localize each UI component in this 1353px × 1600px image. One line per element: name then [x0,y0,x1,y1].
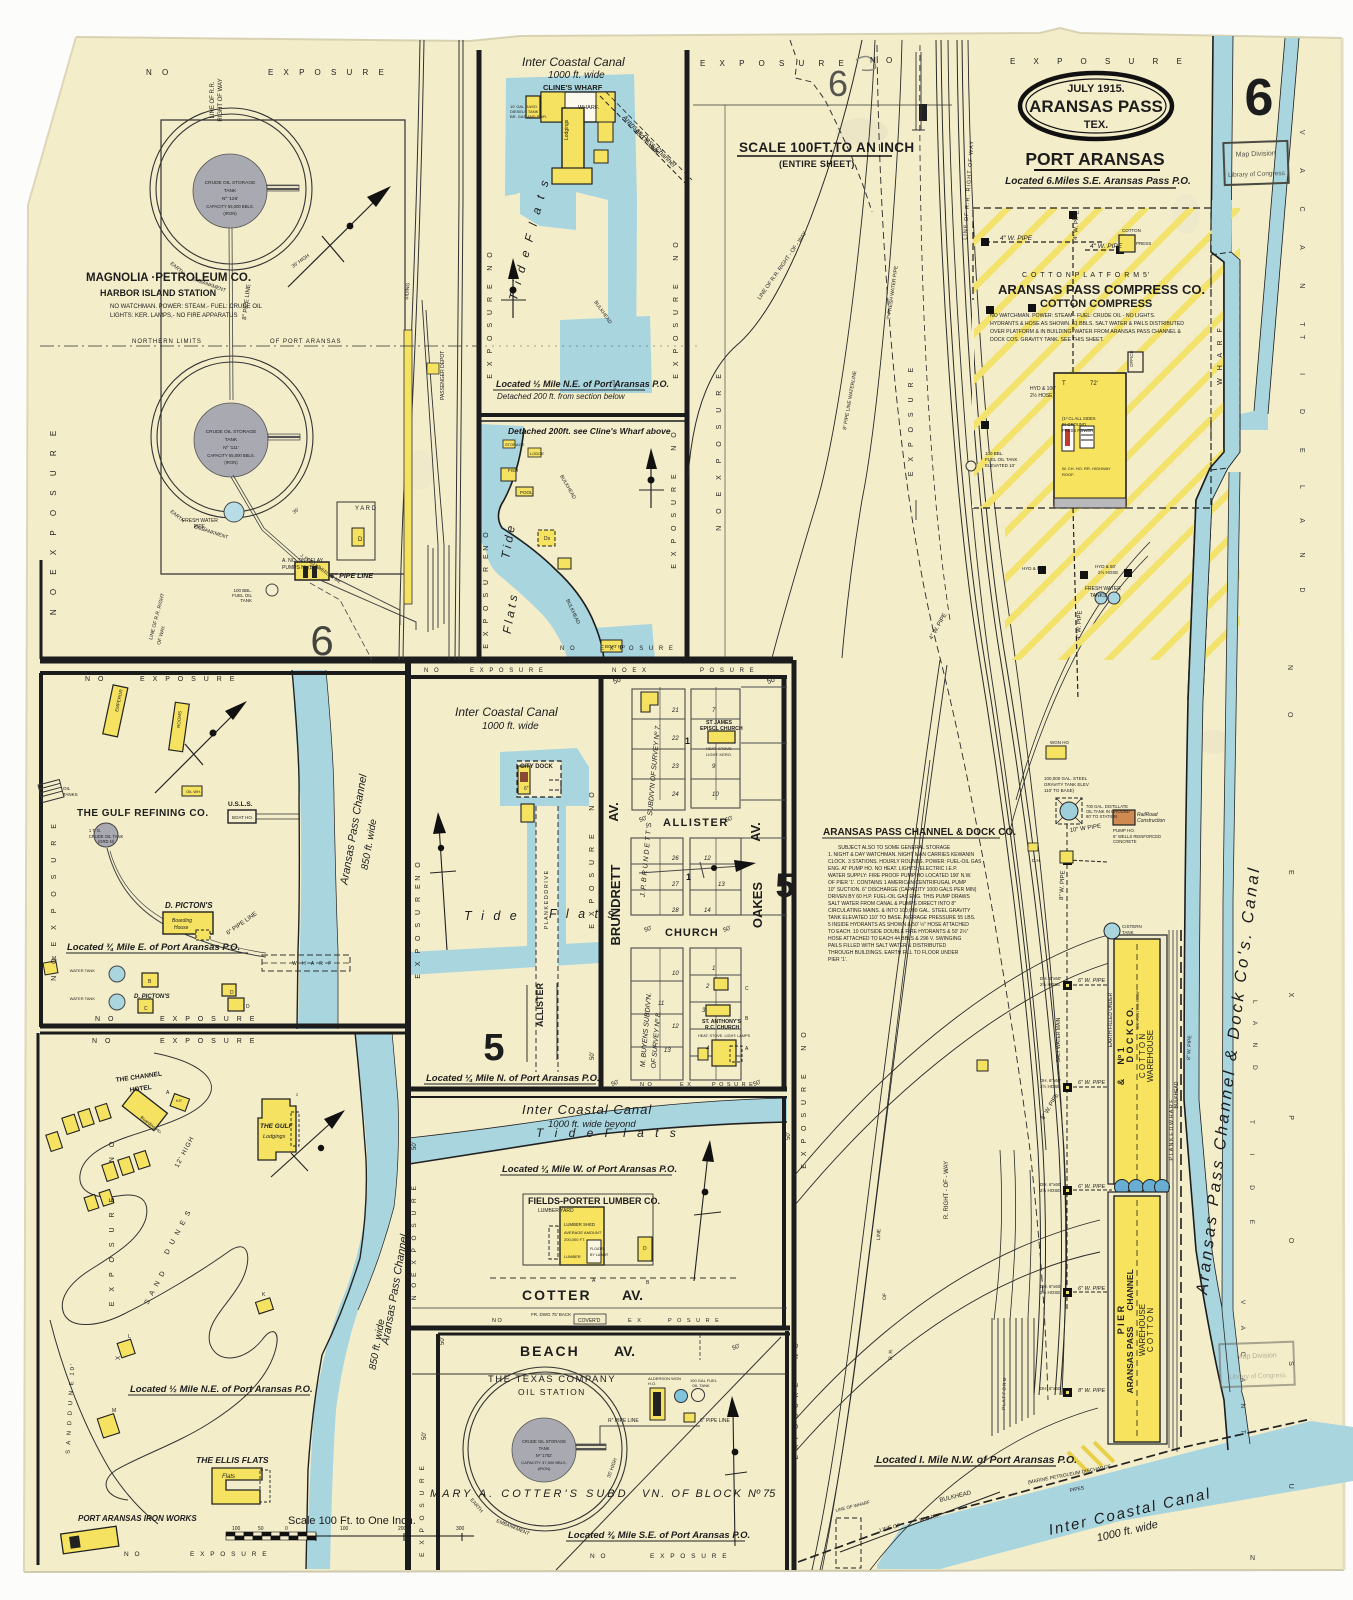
svg-text:CRUDE OIL STORAGE: CRUDE OIL STORAGE [522,1439,566,1444]
svg-text:Y A R D: Y A R D [355,506,377,512]
svg-text:STORAGE: STORAGE [505,442,525,447]
svg-text:Inter Coastal Canal: Inter Coastal Canal [455,705,558,719]
svg-text:KIT: KIT [176,1098,183,1103]
svg-text:E X P O S U R E: E X P O S U R E [415,881,422,978]
svg-text:N O: N O [92,1038,113,1045]
svg-text:E X: E X [628,1318,643,1324]
svg-text:OIL TANK: OIL TANK [692,1383,710,1388]
svg-text:Lodgings: Lodgings [263,1134,286,1140]
svg-text:1: 1 [685,736,690,746]
svg-text:COTTON: COTTON [1122,228,1141,233]
svg-text:H.O.: H.O. [648,1381,656,1386]
svg-text:PORT ARANSAS: PORT ARANSAS [1025,149,1164,169]
svg-text:N O: N O [95,1016,116,1023]
svg-text:FRESH WATER: FRESH WATER [1085,586,1121,592]
svg-text:6″ W. PIPE: 6″ W. PIPE [1078,1286,1105,1292]
svg-text:2½ HOSE: 2½ HOSE [1098,569,1118,575]
svg-text:6″ PIPE LINE: 6″ PIPE LINE [700,1418,731,1424]
svg-text:N O E X: N O E X [612,668,648,674]
svg-text:6″ W. PIPE: 6″ W. PIPE [1078,1080,1105,1086]
svg-text:Construction: Construction [1137,818,1165,824]
svg-text:V A C A N T: V A C A N T [1239,1300,1246,1444]
svg-text:Flats: Flats [222,1474,235,1480]
svg-text:N O: N O [146,68,172,77]
svg-text:COTTER: COTTER [522,1287,592,1303]
svg-text:Lodgings: Lodgings [564,119,570,140]
svg-text:2½ HOSE: 2½ HOSE [1030,392,1053,399]
svg-text:LINE: LINE [876,1228,882,1240]
svg-text:Located I. Mile N.W. of Port A: Located I. Mile N.W. of Port Aransas P.O… [876,1454,1077,1466]
svg-text:FUEL OIL TANK: FUEL OIL TANK [985,457,1018,462]
svg-text:6″ W. PIPE: 6″ W. PIPE [1078,978,1105,984]
svg-text:L: L [128,1334,131,1340]
svg-text:E X P O S U R E: E X P O S U R E [793,1381,800,1460]
svg-text:80' TO STATION: 80' TO STATION [1086,814,1117,819]
svg-text:N O: N O [801,1029,808,1050]
svg-text:COVER'D: COVER'D [578,1318,601,1324]
svg-text:E X P O S U R E: E X P O S U R E [1287,870,1294,1600]
svg-text:Located ¼ Mile N. of Port Aran: Located ¼ Mile N. of Port Aransas P.O. [426,1073,600,1084]
svg-text:N O: N O [1286,665,1293,737]
svg-text:T I D E: T I D E [1298,335,1305,469]
svg-text:EPISCL CHURCH: EPISCL CHURCH [700,726,743,732]
svg-text:PUMP HO.: PUMP HO. [1113,828,1135,833]
svg-text:DH. 6″x60': DH. 6″x60' [1040,1078,1061,1083]
svg-text:12: 12 [672,1024,679,1030]
svg-text:LIGHT: KERO.: LIGHT: KERO. [706,752,732,757]
svg-text:OF PIER '1'. CONTAINS 1 AMERI: OF PIER '1'. CONTAINS 1 AMERICAN CENTRIF… [828,880,967,886]
svg-text:2½ HOSE: 2½ HOSE [1040,981,1060,987]
svg-text:N O: N O [424,668,441,674]
svg-text:OF: OF [882,1293,888,1300]
svg-text:MAGNOLIA ·PETROLEUM CO.: MAGNOLIA ·PETROLEUM CO. [86,272,251,284]
svg-text:BY LABOR: BY LABOR [590,1253,608,1257]
svg-text:DH. 6″x60': DH. 6″x60' [1040,1182,1061,1187]
svg-text:(1º CL ALL SIDES: (1º CL ALL SIDES [1062,416,1096,421]
svg-text:D: D [230,990,234,996]
svg-text:RIGHT OF WAY: RIGHT OF WAY [218,78,224,121]
svg-text:N O: N O [560,646,577,652]
svg-text:ARANSAS PASS: ARANSAS PASS [1029,97,1163,116]
svg-text:Scale 100 Ft. to One Inch.: Scale 100 Ft. to One Inch. [288,1515,416,1527]
svg-text:N O: N O [483,529,490,550]
svg-text:WHARF.: WHARF. [578,105,600,111]
svg-text:FR. DWG 75' BACK: FR. DWG 75' BACK [531,1312,571,1317]
svg-text:D. PICTON'S: D. PICTON'S [134,994,170,1000]
svg-text:AV.: AV. [748,822,763,842]
svg-text:(IRON): (IRON) [224,460,238,465]
svg-text:W H A R F: W H A R F [292,961,333,967]
svg-text:N O: N O [590,1553,608,1560]
svg-text:MARY A. COTTER'S SUBD: MARY A. COTTER'S SUBD [430,1488,629,1500]
svg-text:Located ⅜ Mile S.E. of Port Ar: Located ⅜ Mile S.E. of Port Aransas P.O. [568,1530,750,1541]
svg-text:AVERAGE AMOUNT: AVERAGE AMOUNT [564,1230,602,1235]
svg-text:T I D E: T I D E [1248,1120,1255,1238]
svg-text:10: 10 [672,971,679,977]
svg-text:Located ¾ Mile E. of Port Aran: Located ¾ Mile E. of Port Aransas P.O. [67,942,240,953]
svg-text:13: 13 [718,882,725,888]
svg-text:CHANNEL: CHANNEL [1125,1269,1135,1311]
svg-text:LUMBER SHED: LUMBER SHED [564,1222,595,1227]
svg-text:LUMBER YARD: LUMBER YARD [538,1208,574,1214]
svg-text:L A N D: L A N D [1298,485,1305,606]
svg-text:ELEVATED 10': ELEVATED 10' [985,463,1015,468]
svg-text:CHURCH: CHURCH [665,927,719,939]
svg-text:(ENTIRE SHEET): (ENTIRE SHEET) [779,159,855,169]
svg-text:Nº '111': Nº '111' [223,445,239,451]
svg-text:E X P O S U R E: E X P O S U R E [140,676,237,683]
svg-text:HYD & 100': HYD & 100' [1030,386,1056,392]
svg-text:CLINE'S WHARF: CLINE'S WHARF [543,83,603,92]
svg-text:ARANSAS PASS: ARANSAS PASS [1125,1326,1135,1393]
svg-text:SALT WATER MAIN: SALT WATER MAIN [1056,1017,1062,1062]
svg-text:ALLISTER: ALLISTER [535,983,545,1027]
svg-text:100 BBL.: 100 BBL. [985,451,1004,456]
svg-text:OIL STATION: OIL STATION [518,1387,586,1397]
svg-text:JULY 1915.: JULY 1915. [1067,83,1125,95]
svg-text:Inter Coastal Canal: Inter Coastal Canal [522,1102,652,1117]
svg-text:T i d e F l a t s: T i d e F l a t s [536,1126,680,1140]
svg-text:E X P O S U R E: E X P O S U R E [109,1194,116,1306]
svg-text:50: 50 [258,1526,264,1532]
svg-text:5 INSIDE HYDRANTS AS SHOWN & 5: 5 INSIDE HYDRANTS AS SHOWN & 50' ½″ HOSE… [828,921,969,928]
svg-text:E X P O S U R E: E X P O S U R E [589,831,596,928]
svg-text:11: 11 [658,1001,664,1007]
svg-text:1. NIGHT & DAY WATCHMAN. NIGHT: 1. NIGHT & DAY WATCHMAN. NIGHT MAN CARRI… [828,852,975,858]
svg-text:DH. 6″x60': DH. 6″x60' [1040,976,1061,981]
svg-text:CAPACITY 37,500 BBLS.: CAPACITY 37,500 BBLS. [521,1460,566,1465]
svg-text:10″ SUCTION. 6″ DISCHARGE (CAP: 10″ SUCTION. 6″ DISCHARGE (CAPACITY 1000… [828,887,977,893]
svg-text:D: D [358,537,363,543]
svg-text:1000 ft. wide: 1000 ft. wide [482,721,539,732]
svg-text:E X P O S U R E: E X P O S U R E [487,281,494,378]
svg-text:28: 28 [671,908,679,914]
svg-text:GRAVITY TANK ELEV: GRAVITY TANK ELEV [1044,782,1089,787]
svg-text:N: N [1250,1555,1255,1562]
svg-text:N O: N O [673,239,680,260]
svg-text:THE TEXAS COMPANY: THE TEXAS COMPANY [488,1374,616,1385]
svg-text:D: D [246,1004,250,1010]
svg-text:OFFICE: OFFICE [1129,351,1134,368]
svg-text:5: 5 [483,1027,504,1069]
svg-text:BULKHEAD: BULKHEAD [1174,1081,1180,1108]
svg-text:FLOATS: FLOATS [590,1247,604,1251]
svg-text:8″ W. PIPE: 8″ W. PIPE [1078,1388,1105,1394]
svg-text:100,000 GAL. STEEL: 100,000 GAL. STEEL [1044,776,1088,781]
svg-text:1: 1 [712,966,715,972]
svg-text:N O: N O [124,1551,142,1558]
svg-text:SUBJECT ALSO TO SOME GENERAL S: SUBJECT ALSO TO SOME GENERAL STORAGE [838,845,951,851]
svg-text:VN. OF BLOCK: VN. OF BLOCK [642,1488,743,1500]
svg-text:PIER '1'.: PIER '1'. [828,957,847,963]
svg-text:NORTHERN LIMITS: NORTHERN LIMITS [132,339,202,345]
svg-text:OIL: OIL [63,786,71,791]
svg-text:C O T T O N P L A T F O R: C O T T O N P L A T F O R M 5' [1022,272,1150,279]
svg-text:E X P O S U R E: E X P O S U R E [908,364,915,476]
svg-text:50': 50' [590,1052,596,1060]
svg-text:R. R.: R. R. [888,1348,894,1360]
svg-text:IN GROUND: IN GROUND [1062,422,1086,427]
svg-text:V A C A N T: V A C A N T [1298,130,1305,342]
svg-text:12: 12 [704,856,711,862]
svg-text:CISTERN: CISTERN [1122,924,1142,929]
svg-text:300: 300 [456,1526,465,1532]
svg-text:P O S U R E: P O S U R E [668,1318,721,1324]
svg-text:D. PICTON'S: D. PICTON'S [165,901,213,910]
svg-text:CONCRETE: CONCRETE [1113,839,1137,844]
svg-text:PRESS POWER.: PRESS POWER. [1062,428,1094,433]
svg-text:NO WATCHMAN. POWER: STEAM - FU: NO WATCHMAN. POWER: STEAM - FUEL: CRUDE … [990,313,1155,319]
svg-text:C: C [745,986,749,992]
svg-text:U.S.L.S.: U.S.L.S. [228,801,253,808]
svg-text:WATER TANK: WATER TANK [70,968,96,973]
svg-text:W. CH. HO. RR. HIGHWAY: W. CH. HO. RR. HIGHWAY [1062,466,1111,471]
svg-text:1 T. G.: 1 T. G. [89,828,101,833]
svg-text:2½ HOSE: 2½ HOSE [1040,1289,1060,1295]
svg-text:LODGE: LODGE [530,451,544,456]
svg-text:E X P O S U R E: E X P O S U R E [160,1038,257,1045]
svg-text:Ds: Ds [544,536,551,542]
svg-text:E X P O S U R E: E X P O S U R E [801,1071,808,1168]
svg-text:WGN HO: WGN HO [1050,740,1069,745]
svg-text:E X P O S U R E: E X P O S U R E [600,646,675,652]
svg-text:24: 24 [671,792,679,798]
svg-text:PORT ARANSAS IRON WORKS: PORT ARANSAS IRON WORKS [78,1514,197,1523]
svg-text:CAPACITY 55,000 BBLS.: CAPACITY 55,000 BBLS. [207,453,255,458]
svg-text:E X P O S U R E: E X P O S U R E [160,1016,257,1023]
svg-text:E X P O S U R E: E X P O S U R E [650,1553,729,1560]
svg-text:E X P O S U R E: E X P O S U R E [470,668,545,674]
svg-text:BOAT HO.: BOAT HO. [232,815,253,820]
svg-text:1000 ft. wide: 1000 ft. wide [548,70,605,81]
svg-text:TEX.: TEX. [1084,119,1108,131]
svg-text:23: 23 [671,764,679,770]
svg-text:E X P O S U R E: E X P O S U R E [1010,57,1190,66]
svg-text:0: 0 [285,1526,288,1532]
svg-text:6: 6 [828,63,848,104]
svg-text:10: 10 [712,792,719,798]
svg-text:AV.: AV. [614,1343,635,1359]
svg-text:CRUDE OIL STORAGE: CRUDE OIL STORAGE [206,429,257,435]
svg-text:Detached 200 ft. from section: Detached 200 ft. from section below [497,392,626,401]
svg-text:OAKES: OAKES [750,882,765,929]
svg-text:WAREHOUSE: WAREHOUSE [1146,1030,1155,1082]
svg-text:N O: N O [671,429,678,450]
svg-text:N O: N O [793,1341,800,1359]
svg-text:N O: N O [85,676,106,683]
svg-text:110' TO BASE): 110' TO BASE) [1044,788,1075,793]
svg-text:100: 100 [340,1526,349,1532]
svg-text:HARBOR ISLAND STATION: HARBOR ISLAND STATION [100,288,216,298]
svg-text:CLOCK. 3 STATIONS. HOURLY ROUN: CLOCK. 3 STATIONS. HOURLY ROUNDS. POWER:… [828,859,982,865]
svg-text:22: 22 [671,736,679,742]
svg-text:&: & [1116,1078,1126,1085]
svg-text:FISH: FISH [508,468,518,473]
svg-text:DOCK COS. GRAVITY TANK. SEE TH: DOCK COS. GRAVITY TANK. SEE THIS SHEET. [990,337,1104,343]
svg-text:ARANSAS PASS CHANNEL & DOCK CO: ARANSAS PASS CHANNEL & DOCK CO. [823,827,1016,838]
svg-text:DH. 6″x60': DH. 6″x60' [1040,1386,1061,1391]
svg-text:72': 72' [1090,381,1098,387]
svg-text:P L A N K E D D R I V E: P L A N K E D D R I V E [544,870,550,929]
svg-text:EARTH FILLED UNDER: EARTH FILLED UNDER [1108,992,1114,1047]
svg-text:TANK: TANK [1122,930,1134,935]
svg-text:E X P O S U R E: E X P O S U R E [671,471,678,568]
svg-text:E X P O S U R E: E X P O S U R E [419,1463,426,1557]
svg-text:SUPPORTING ROOF: SUPPORTING ROOF [1135,990,1140,1030]
svg-text:TANK: TANK [224,188,237,194]
svg-text:PIPE.: PIPE. [194,524,207,530]
svg-text:N O: N O [415,859,422,880]
svg-text:21: 21 [671,708,679,714]
svg-text:Located ½ Mile N.E. of Port Ar: Located ½ Mile N.E. of Port Aransas P.O. [496,379,669,389]
svg-text:LUMBER: LUMBER [564,1254,581,1259]
svg-text:LIGHTS: KER. LAMPS,- NO FIRE A: LIGHTS: KER. LAMPS,- NO FIRE APPARATUS [110,313,237,319]
svg-text:R. RIGHT - OF - WAY: R. RIGHT - OF - WAY [944,1161,950,1219]
svg-text:F l a t s: F l a t s [549,907,617,921]
svg-text:6: 6 [1245,69,1274,127]
svg-text:NO WATCHMAN. POWER: STEAM.- FU: NO WATCHMAN. POWER: STEAM.- FUEL: CRUDE … [110,304,263,310]
svg-text:N O E X P O S U R E: N O E X P O S U R E [716,369,723,531]
svg-text:2½ HOSE: 2½ HOSE [1040,1187,1060,1193]
svg-text:E X P O S U R E: E X P O S U R E [673,281,680,378]
svg-text:ROOF.: ROOF. [1062,472,1074,477]
svg-text:N O: N O [870,56,896,65]
svg-text:LINE OF R.R.: LINE OF R.R. [210,81,216,118]
svg-text:(IRON): (IRON) [223,211,237,216]
svg-text:E X P O S U R E: E X P O S U R E [190,1551,269,1558]
svg-text:BR. GAS AND PWR.: BR. GAS AND PWR. [510,114,547,119]
svg-text:X: X [116,1356,122,1360]
svg-text:HEAT: STOVE. LIGHT: LAMPS: HEAT: STOVE. LIGHT: LAMPS [698,1034,751,1038]
svg-text:TANKS: TANKS [63,792,78,797]
svg-text:OVER PLATFORM & IN BUILDING. W: OVER PLATFORM & IN BUILDING. WATER FROM … [990,329,1182,335]
svg-text:TANK ELEVATED 110' TO BASE. AV: TANK ELEVATED 110' TO BASE. AVERAGE PRES… [828,915,975,921]
svg-text:2: 2 [705,984,710,990]
svg-text:HYDRANTS & HOSE AS SHOWN. 61: HYDRANTS & HOSE AS SHOWN. 61 BBLS. SALT … [990,321,1184,327]
svg-text:HOSE ATTACHED TO EACH 44 BBL: HOSE ATTACHED TO EACH 44 BBLS & 296 V. S… [828,936,961,942]
svg-text:N O: N O [411,1280,418,1301]
svg-text:1: 1 [686,872,691,882]
svg-text:L A N D: L A N D [1251,1000,1258,1078]
svg-text:TANK: TANK [539,1446,550,1451]
svg-text:(IRON): (IRON) [538,1466,551,1471]
svg-text:POOL: POOL [520,490,533,495]
svg-text:Map Division: Map Division [1237,1352,1277,1360]
svg-text:Inter Coastal Canal: Inter Coastal Canal [522,55,625,69]
svg-text:TANK: TANK [240,598,252,603]
svg-text:13: 13 [664,1048,671,1054]
svg-text:N O E X P O S U R E: N O E X P O S U R E [49,425,58,615]
svg-text:D: D [643,1246,647,1252]
svg-text:SCALE 100FT.TO AN INCH: SCALE 100FT.TO AN INCH [739,140,914,155]
svg-text:BRUNDRETT: BRUNDRETT [608,865,623,946]
svg-text:200: 200 [398,1526,407,1532]
svg-text:WATER TANK: WATER TANK [70,996,96,1001]
svg-text:Nº '1702': Nº '1702' [536,1453,553,1458]
svg-text:THROUGH BUILDINGS. EARTH FILL: THROUGH BUILDINGS. EARTH FILL TO FLOOR U… [828,950,959,956]
svg-text:Nº '126': Nº '126' [222,196,238,202]
svg-text:C O T T O N: C O T T O N [1146,1308,1155,1353]
svg-text:N O: N O [492,1318,503,1324]
svg-text:N O: N O [589,789,596,810]
svg-text:14: 14 [704,908,711,914]
svg-text:26: 26 [671,856,679,862]
svg-text:200,000 FT.: 200,000 FT. [564,1237,585,1242]
svg-text:THE GULF REFINING CO.: THE GULF REFINING CO. [77,808,209,819]
svg-text:27: 27 [671,882,679,888]
svg-text:ENG. AT PUMP HO. NO HEAT. LI: ENG. AT PUMP HO. NO HEAT. LIGHTS: ELECTR… [828,866,957,872]
svg-text:6″: 6″ [524,786,529,792]
svg-text:Located 6.Miles S.E. Aransas P: Located 6.Miles S.E. Aransas Pass P.O. [1005,176,1191,187]
svg-text:CAPACITY 55,000 BBLS.: CAPACITY 55,000 BBLS. [206,204,254,209]
svg-text:6: 6 [310,617,333,664]
svg-text:E X P O S U R E: E X P O S U R E [700,59,850,68]
svg-text:Nº 75: Nº 75 [748,1488,776,1500]
svg-text:N O: N O [640,1082,653,1088]
svg-text:E X: E X [680,1082,692,1088]
svg-text:House: House [174,925,189,931]
svg-text:Located ¼ Mile W. of Port Aran: Located ¼ Mile W. of Port Aransas P.O. [502,1164,677,1175]
svg-text:4″ W. PIPE: 4″ W. PIPE [1090,243,1123,250]
svg-text:CITY DOCK: CITY DOCK [520,764,554,770]
svg-text:AV.: AV. [622,1287,643,1303]
svg-text:THE ELLIS FLATS: THE ELLIS FLATS [196,1455,269,1465]
svg-text:P O S U R E: P O S U R E [700,668,756,674]
svg-text:AV.: AV. [606,802,621,822]
svg-text:DH. 6″x60': DH. 6″x60' [1040,1284,1061,1289]
svg-text:E X P O S U R E: E X P O S U R E [411,1183,418,1277]
svg-text:P O S U R E: P O S U R E [712,1082,754,1088]
svg-text:2½ HOSE: 2½ HOSE [1040,1083,1060,1089]
svg-text:6″ W. PIPE: 6″ W. PIPE [1078,1184,1105,1190]
svg-text:CIRCULATING MAINS. & INTO 100,: CIRCULATING MAINS. & INTO 100,000 GAL. S… [828,908,971,914]
svg-text:ALLISTER: ALLISTER [663,817,729,829]
svg-text:E X P O S U R E: E X P O S U R E [268,68,388,77]
svg-text:TO EACH. 10 OUTSIDE DOUBLE FI: TO EACH. 10 OUTSIDE DOUBLE FIRE HYDRANTS… [828,928,969,935]
svg-text:50': 50' [786,1132,792,1140]
svg-text:R″ PIPE LINE: R″ PIPE LINE [608,1418,639,1424]
svg-text:COTTON COMPRESS: COTTON COMPRESS [1040,298,1152,310]
svg-text:T: T [1062,381,1066,387]
svg-text:50': 50' [422,1432,428,1440]
svg-text:SALT WATER FROM CANAL & PUMPS: SALT WATER FROM CANAL & PUMPS DIRECT INT… [828,901,956,907]
svg-text:Boarding: Boarding [172,918,192,924]
svg-text:OIL WH.: OIL WH. [186,789,201,794]
svg-text:D.H.: D.H. [1032,858,1041,863]
svg-text:PAILS FILLED WITH SALT WATER &: PAILS FILLED WITH SALT WATER & DISTRIBUT… [828,943,946,949]
svg-text:100: 100 [232,1526,241,1532]
svg-text:W H A R F: W H A R F [1217,325,1224,385]
svg-text:WATER SUPPLY: FIRE PROOF PUMP: WATER SUPPLY: FIRE PROOF PUMP HO LOCATED… [828,873,971,879]
svg-text:R.C. CHURCH: R.C. CHURCH [705,1025,740,1031]
svg-text:D O C K C O.: D O C K C O. [1125,1007,1135,1062]
svg-text:PASSENGER DEPOT: PASSENGER DEPOT [440,351,446,400]
svg-text:BEACH: BEACH [520,1343,580,1359]
svg-text:HEAT: STOVE: HEAT: STOVE [706,746,732,751]
svg-text:(GRD.N): (GRD.N) [98,839,115,844]
svg-text:4″ W. PIPE: 4″ W. PIPE [1000,235,1033,242]
svg-text:50': 50' [412,1142,418,1150]
svg-text:FIELDS-PORTER LUMBER CO.: FIELDS-PORTER LUMBER CO. [528,1196,660,1206]
svg-text:PRESS: PRESS [1136,241,1151,246]
svg-text:C: C [144,1006,148,1012]
svg-text:TANKS.: TANKS. [1090,593,1108,599]
svg-text:N O: N O [109,1138,116,1162]
svg-text:OF PORT ARANSAS: OF PORT ARANSAS [270,339,341,345]
svg-text:Map Division: Map Division [1236,150,1276,158]
svg-text:TANK: TANK [225,437,238,443]
svg-text:N O E X P O S U R E: N O E X P O S U R E [51,819,58,981]
